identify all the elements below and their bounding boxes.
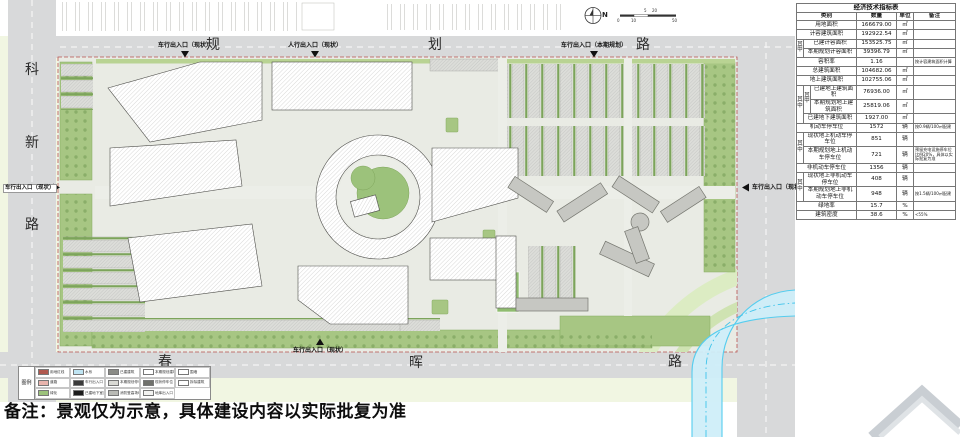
col-header: 备注	[913, 13, 955, 21]
legend-swatch	[38, 380, 49, 386]
table-row: 总建筑面积104682.06㎡	[797, 67, 956, 76]
table-row: 其中 其中 已建地上建筑面积76936.00㎡	[797, 85, 956, 99]
remark-note: 备注：景观仅为示意，具体建设内容以实际批复为准	[4, 397, 407, 422]
table-row: 计容建筑面积192922.54㎡	[797, 30, 956, 39]
scale-bar	[620, 15, 676, 17]
col-header: 类别	[797, 13, 857, 21]
legend-swatch	[38, 390, 49, 396]
chevron-watermark-icon	[872, 392, 960, 437]
entrance-label-bottom: 车行出入口（现状）	[293, 348, 347, 354]
scale-tick: 20	[652, 9, 657, 13]
neighbour-lots	[15, 2, 561, 31]
table-row: 本期规划地上机动车停车位721辆预留充电设施停车位比例20%，具体以实际批复为准	[797, 147, 956, 164]
site-plan-sheet: 科 新 路 规 划 路 春 晖 路 车行出入口（现状） 人行出入口（现状） 车行…	[0, 0, 960, 437]
legend-swatch	[143, 369, 154, 375]
road-name-left-char: 新	[25, 136, 39, 150]
road-name-left-char: 路	[25, 218, 39, 232]
road-name-bottom-char: 晖	[409, 356, 423, 370]
table-title: 经济技术指标表	[797, 4, 956, 13]
table-row: 本期规划计容面积39396.79㎡	[797, 48, 956, 57]
legend-item: 道路	[35, 378, 70, 389]
economic-indicator-table: 经济技术指标表 类别 数量 单位 备注 用地面积166679.00㎡ 计容建筑面…	[796, 3, 956, 220]
table-row: 本期规划地上非机动车停车位948辆按1.5辆/100㎡配建	[797, 187, 956, 201]
legend-swatch	[143, 390, 154, 396]
legend-title: 图例	[19, 367, 35, 399]
legend-item: 已建建筑	[105, 367, 140, 378]
compass-north-label: N	[602, 11, 608, 19]
table-row: 非机动车停车位1356辆	[797, 163, 956, 172]
road-name-left-char: 科	[25, 63, 39, 77]
entrance-label-left: 车行出入口（现状）	[3, 184, 57, 193]
table-row: 建筑密度38.6%<55%	[797, 211, 956, 220]
north-compass-icon	[585, 8, 601, 24]
legend-item: 本期规划建筑	[140, 367, 175, 378]
legend-item: 车行出入口	[70, 378, 105, 389]
legend-swatch	[73, 369, 84, 375]
road-name-bottom-char: 路	[668, 355, 682, 369]
legend-swatch	[38, 369, 49, 375]
legend-swatch	[143, 380, 154, 386]
legend-item: 用地红线	[35, 367, 70, 378]
road-name-top-char: 路	[636, 38, 650, 52]
legend: 图例 用地红线 水系 已建建筑 本期规划建筑 围墙 道路 车行出入口 本期规划停…	[18, 366, 211, 400]
road-name-top-char: 划	[428, 38, 442, 52]
scale-tick: 5	[644, 9, 647, 13]
table-row: 用地面积166679.00㎡	[797, 21, 956, 30]
entrance-label-top-right: 车行出入口（本期规划）	[561, 43, 627, 49]
table-row: 机动车停车位1572辆按0.9辆/100㎡配建	[797, 123, 956, 132]
legend-item: 本期规划停车位	[105, 378, 140, 389]
legend-swatch	[108, 380, 119, 386]
table-row: 其中 现状地上非机动车停车位408辆	[797, 173, 956, 187]
table-row: 已建地下建筑面积1927.00㎡	[797, 114, 956, 123]
legend-swatch	[108, 390, 119, 396]
legend-swatch	[178, 369, 189, 375]
entrance-label-top-mid: 人行出入口（现状）	[288, 43, 342, 49]
scale-tick: 50	[672, 19, 677, 23]
table-row: 绿地率15.7%	[797, 201, 956, 210]
legend-swatch	[178, 380, 189, 386]
legend-item: 围墙	[175, 367, 210, 378]
table-row: 其中 已建计容面积153525.75㎡	[797, 39, 956, 48]
entrance-label-top-left: 车行出入口（现状）	[158, 43, 212, 49]
legend-item: 水系	[70, 367, 105, 378]
legend-item: 现状停车位	[140, 378, 175, 389]
scale-tick: 0	[617, 19, 620, 23]
legend-swatch	[108, 369, 119, 375]
col-header: 单位	[896, 13, 913, 21]
table-row: 其中 现状地上机动车停车位851辆	[797, 132, 956, 146]
table-row: 本期规划地上建筑面积25819.06㎡	[797, 99, 956, 113]
scale-tick: 10	[631, 19, 636, 23]
table-row: 容积率1.16按计容建筑面积计算	[797, 57, 956, 66]
table-row: 地上建筑面积102755.06㎡	[797, 76, 956, 85]
legend-swatch	[73, 390, 84, 396]
legend-item: 拆除建筑	[175, 378, 210, 389]
legend-swatch	[73, 380, 84, 386]
col-header: 数量	[856, 13, 896, 21]
